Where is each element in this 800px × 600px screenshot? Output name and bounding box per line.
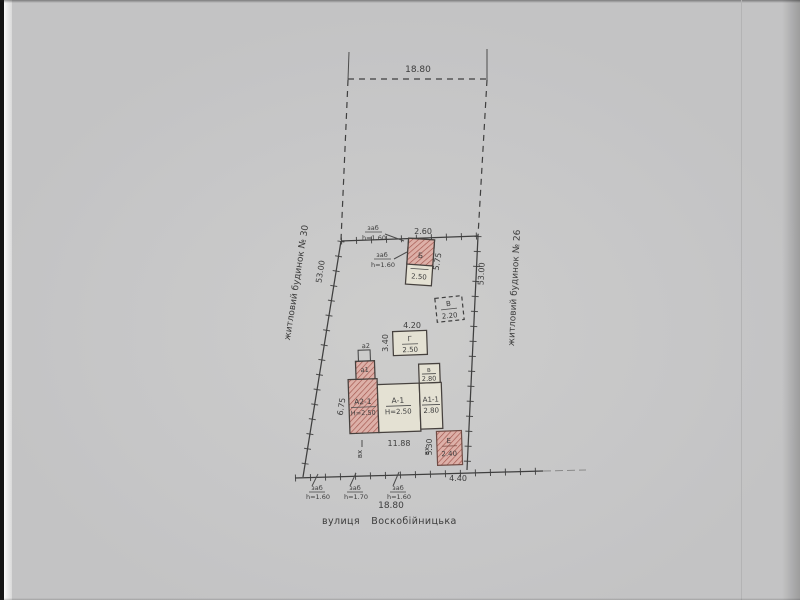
dim-front-bottom: 18.80 bbox=[378, 501, 404, 511]
house-a2-label: А2-1 bbox=[354, 397, 372, 407]
label-divider bbox=[441, 308, 457, 310]
street-line-continuation bbox=[543, 470, 586, 471]
building-e: Е 2.40 bbox=[436, 431, 462, 466]
fence-note-bottom-c: заб h=1.60 bbox=[387, 472, 411, 501]
dim-house-side: 6.75 bbox=[336, 397, 348, 416]
dim-tick-left bbox=[348, 52, 349, 80]
fence-label: заб bbox=[376, 251, 387, 259]
fence-label: заб bbox=[392, 484, 403, 492]
dim-side-left: 53.00 bbox=[314, 260, 326, 284]
setback-side-right bbox=[478, 80, 487, 236]
house-a1-outline bbox=[419, 382, 443, 429]
house-a-label: А-1 bbox=[391, 396, 404, 405]
dim-side-right: 53.00 bbox=[476, 262, 486, 285]
fence-height: h=1.60 bbox=[362, 234, 386, 242]
fence-height: h=1.60 bbox=[306, 493, 330, 501]
house-a-height: Н=2.50 bbox=[385, 407, 412, 416]
shed-v-value: 2.20 bbox=[442, 311, 458, 321]
dim-front-top: 18.80 bbox=[405, 65, 431, 75]
dim-building-b-width: 2.60 bbox=[414, 227, 432, 236]
fence-label: заб bbox=[311, 484, 322, 492]
shed-v: В 2.20 bbox=[435, 296, 464, 323]
setback-dimension-top: 18.80 bbox=[341, 49, 487, 240]
house-a2-height: Н=2.50 bbox=[351, 409, 376, 418]
entrance-mark-left: вх bbox=[356, 450, 364, 458]
setback-side-left bbox=[341, 80, 348, 240]
house-a1-label: А1-1 bbox=[423, 395, 440, 404]
house-a2-outline bbox=[348, 379, 379, 434]
dim-corner-right: 4.40 bbox=[449, 474, 467, 483]
annex-v-letter: в bbox=[427, 366, 431, 374]
site-plan-drawing: 18.80 53.00 53.00 житловий будинок № 30 … bbox=[0, 0, 800, 600]
label-divider bbox=[442, 446, 457, 447]
neighbor-left-label: житловий будинок № 30 bbox=[283, 224, 311, 341]
fence-note-top-b: заб h=1.60 bbox=[371, 251, 407, 269]
dim-building-e-depth: 5.30 bbox=[425, 438, 434, 455]
porch-a1-label: а1 bbox=[361, 366, 369, 374]
fence-height: h=1.60 bbox=[387, 493, 411, 501]
building-b-value: 2.50 bbox=[411, 272, 427, 281]
street-prefix: вулиця bbox=[322, 516, 360, 527]
building-b-letter: Б bbox=[418, 251, 424, 260]
building-g: Г 2.50 bbox=[393, 330, 428, 355]
step-a2-outline bbox=[358, 350, 370, 361]
annex-v-value: 2.80 bbox=[422, 375, 437, 384]
building-e-value: 2.40 bbox=[441, 450, 457, 459]
neighbor-right-label: житловий будинок № 26 bbox=[507, 229, 523, 346]
dim-building-g-width: 4.20 bbox=[403, 321, 421, 330]
street-name: Воскобійницька bbox=[371, 516, 456, 527]
step-a2-label: а2 bbox=[362, 342, 370, 350]
fence-label: заб bbox=[367, 224, 378, 232]
building-g-letter: Г bbox=[408, 335, 413, 343]
building-g-value: 2.50 bbox=[402, 346, 418, 355]
building-b: Б 2.50 bbox=[405, 238, 434, 286]
label-divider bbox=[402, 344, 418, 345]
fence-label: заб bbox=[349, 484, 360, 492]
scanned-site-plan-page: 18.80 53.00 53.00 житловий будинок № 30 … bbox=[0, 0, 800, 600]
dim-building-g-depth: 3.40 bbox=[381, 334, 390, 352]
house-a1-value: 2.80 bbox=[423, 406, 439, 415]
fence-height: h=1.60 bbox=[371, 261, 395, 269]
dim-building-b-depth: 5.75 bbox=[432, 252, 444, 271]
building-e-letter: Е bbox=[446, 437, 451, 445]
building-e-outline bbox=[436, 431, 462, 466]
fence-height: h=1.70 bbox=[344, 493, 368, 501]
dim-house-width: 11.88 bbox=[388, 439, 411, 448]
shed-v-letter: В bbox=[446, 300, 452, 308]
leader-line bbox=[394, 252, 407, 259]
